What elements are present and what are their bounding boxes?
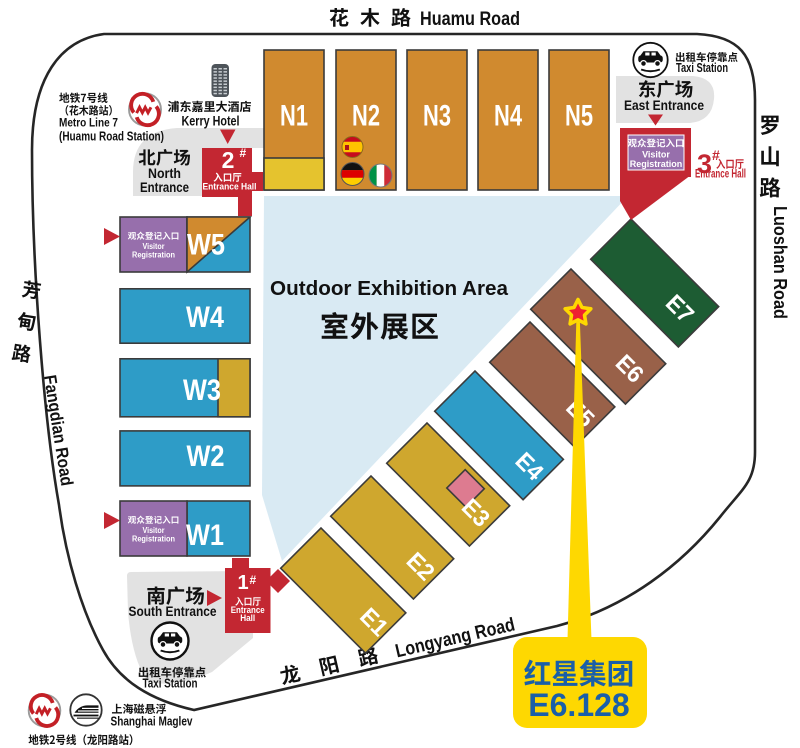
svg-text:Huamu Road: Huamu Road bbox=[420, 8, 520, 30]
svg-text:Metro Line 7: Metro Line 7 bbox=[59, 116, 118, 130]
svg-text:1: 1 bbox=[237, 572, 248, 594]
svg-text:Entrance Hall: Entrance Hall bbox=[695, 169, 746, 181]
svg-text:W4: W4 bbox=[186, 301, 224, 334]
svg-text:Entrance Hall: Entrance Hall bbox=[203, 182, 257, 193]
svg-text:W3: W3 bbox=[183, 374, 221, 407]
svg-text:South Entrance: South Entrance bbox=[129, 603, 217, 619]
svg-text:#: # bbox=[250, 573, 257, 587]
svg-text:Taxi Station: Taxi Station bbox=[143, 677, 198, 691]
svg-text:N3: N3 bbox=[423, 100, 451, 133]
svg-text:W5: W5 bbox=[187, 229, 225, 262]
svg-text:N4: N4 bbox=[494, 100, 522, 133]
svg-text:Taxi Station: Taxi Station bbox=[676, 61, 728, 75]
svg-text:N1: N1 bbox=[280, 100, 308, 133]
svg-text:(Huamu Road Station): (Huamu Road Station) bbox=[59, 129, 164, 144]
svg-text:N2: N2 bbox=[352, 100, 380, 133]
svg-text:Luoshan Road: Luoshan Road bbox=[770, 206, 791, 319]
svg-text:Hall: Hall bbox=[240, 613, 255, 624]
svg-text:Shanghai Maglev: Shanghai Maglev bbox=[111, 715, 193, 729]
svg-text:Visitor: Visitor bbox=[642, 150, 670, 160]
svg-text:N5: N5 bbox=[565, 100, 593, 133]
svg-text:Entrance: Entrance bbox=[140, 179, 189, 195]
svg-text:#: # bbox=[712, 147, 720, 163]
svg-text:2: 2 bbox=[222, 147, 235, 173]
svg-text:Outdoor Exhibition Area: Outdoor Exhibition Area bbox=[270, 278, 509, 300]
svg-text:Registration: Registration bbox=[630, 159, 683, 169]
svg-text:Registration: Registration bbox=[132, 251, 175, 260]
svg-text:Registration: Registration bbox=[132, 535, 175, 544]
svg-text:Fangdian Road: Fangdian Road bbox=[40, 373, 77, 487]
svg-text:Longyang Road: Longyang Road bbox=[393, 614, 517, 662]
svg-text:E6.128: E6.128 bbox=[528, 687, 629, 723]
svg-text:#: # bbox=[240, 146, 247, 160]
svg-text:W1: W1 bbox=[186, 519, 224, 552]
svg-text:East Entrance: East Entrance bbox=[624, 97, 704, 113]
svg-text:W2: W2 bbox=[187, 440, 225, 473]
svg-text:Kerry Hotel: Kerry Hotel bbox=[182, 113, 240, 129]
